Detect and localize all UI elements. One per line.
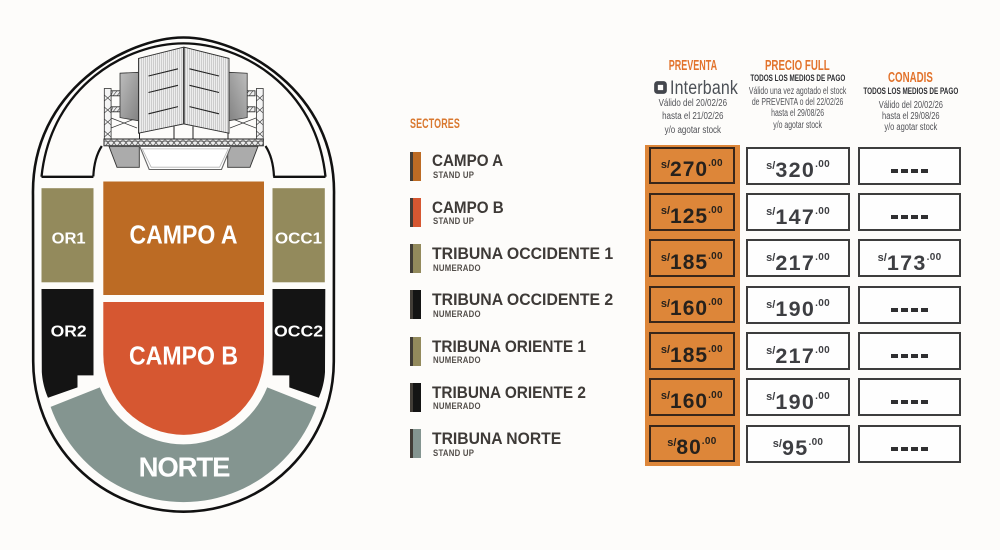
svg-text:OR2: OR2 <box>51 324 87 341</box>
svg-text:OR1: OR1 <box>52 231 86 248</box>
svg-text:OCC1: OCC1 <box>275 231 322 248</box>
svg-text:OCC2: OCC2 <box>274 324 323 341</box>
svg-text:CAMPO A: CAMPO A <box>130 220 238 250</box>
svg-text:NORTE: NORTE <box>139 452 231 483</box>
svg-text:CAMPO B: CAMPO B <box>129 341 238 371</box>
